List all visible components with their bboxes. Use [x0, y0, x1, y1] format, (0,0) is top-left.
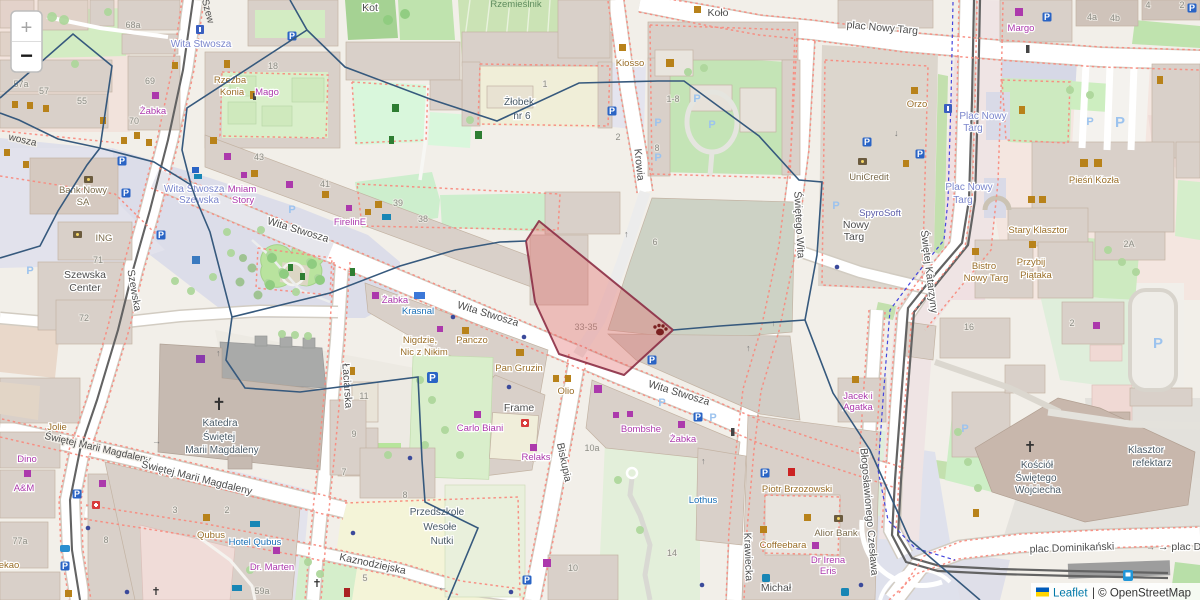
svg-text:71: 71: [93, 255, 103, 265]
svg-text:5: 5: [362, 573, 367, 583]
svg-text:Nowy Targ: Nowy Targ: [964, 273, 1009, 284]
svg-text:→: →: [1146, 542, 1155, 552]
svg-text:Relaks: Relaks: [521, 452, 550, 463]
svg-text:↑: ↑: [216, 348, 221, 358]
svg-text:Panczo: Panczo: [456, 335, 488, 346]
svg-text:16: 16: [964, 322, 974, 332]
svg-text:7: 7: [341, 467, 346, 477]
svg-text:←: ←: [438, 582, 447, 592]
svg-text:↑: ↑: [701, 456, 706, 466]
svg-text:Mago: Mago: [255, 87, 279, 98]
svg-text:Żabka: Żabka: [140, 106, 167, 117]
svg-text:P: P: [917, 149, 923, 159]
svg-text:Wita Stwosza: Wita Stwosza: [171, 39, 232, 50]
svg-text:41: 41: [320, 179, 330, 189]
svg-text:2: 2: [615, 132, 620, 142]
svg-text:Michał: Michał: [761, 582, 792, 594]
svg-text:38: 38: [418, 214, 428, 224]
svg-text:P: P: [695, 412, 701, 422]
svg-text:ekao: ekao: [0, 560, 19, 571]
svg-text:P: P: [1189, 3, 1195, 13]
svg-text:Świętego: Świętego: [1015, 471, 1057, 484]
svg-text:9: 9: [351, 429, 356, 439]
svg-text:SA: SA: [77, 197, 90, 208]
svg-text:Bombshe: Bombshe: [621, 424, 661, 435]
svg-text:A&M: A&M: [14, 483, 35, 494]
svg-text:→: →: [152, 436, 161, 446]
svg-text:8: 8: [402, 490, 407, 500]
svg-text:P: P: [1153, 335, 1163, 352]
svg-text:P: P: [708, 119, 715, 131]
svg-text:1-8: 1-8: [666, 94, 679, 104]
svg-text:8: 8: [103, 535, 108, 545]
svg-text:✝: ✝: [312, 578, 321, 590]
svg-text:1: 1: [542, 79, 547, 89]
svg-text:Żabka: Żabka: [382, 295, 409, 306]
svg-text:Agatka: Agatka: [843, 402, 873, 413]
svg-text:P: P: [524, 575, 530, 585]
svg-text:69: 69: [145, 76, 155, 86]
svg-text:↑: ↑: [746, 343, 751, 353]
svg-text:2: 2: [224, 505, 229, 515]
svg-text:Dr Irena: Dr Irena: [811, 555, 846, 566]
svg-text:2: 2: [1179, 0, 1184, 10]
svg-text:Koło: Koło: [707, 7, 728, 19]
svg-text:✝: ✝: [1024, 439, 1037, 456]
svg-text:Żabka: Żabka: [670, 434, 697, 445]
svg-text:6: 6: [652, 237, 657, 247]
svg-text:P: P: [654, 117, 661, 129]
svg-text:P: P: [26, 265, 33, 277]
svg-text:→: →: [449, 284, 458, 294]
svg-text:Dr. Marten: Dr. Marten: [250, 562, 294, 573]
svg-text:Olio: Olio: [558, 386, 575, 397]
svg-text:Konia: Konia: [220, 87, 245, 98]
svg-text:Targ: Targ: [963, 123, 982, 134]
svg-text:11: 11: [359, 391, 368, 401]
svg-text:Eris: Eris: [820, 566, 837, 577]
svg-text:P: P: [62, 561, 68, 571]
svg-text:→ plac D: → plac D: [1158, 541, 1200, 553]
svg-text:70: 70: [129, 116, 139, 126]
svg-text:Coffeebara: Coffeebara: [760, 540, 808, 551]
svg-text:4: 4: [1145, 0, 1150, 10]
svg-text:Nutki: Nutki: [431, 536, 454, 547]
svg-text:10: 10: [568, 563, 578, 573]
svg-text:SpyroSoft: SpyroSoft: [859, 208, 901, 219]
svg-text:Carlo Biani: Carlo Biani: [457, 423, 503, 434]
svg-text:Pieśń Kozła: Pieśń Kozła: [1069, 175, 1120, 186]
svg-text:2A: 2A: [1123, 239, 1134, 249]
svg-text:P: P: [709, 412, 716, 424]
svg-text:Nowy: Nowy: [843, 219, 870, 231]
svg-text:Bistro: Bistro: [972, 261, 996, 272]
svg-text:P: P: [961, 423, 968, 435]
svg-text:Krawiecka: Krawiecka: [741, 532, 755, 581]
svg-text:Rzemieślnik: Rzemieślnik: [490, 0, 541, 10]
svg-text:10a: 10a: [584, 443, 599, 453]
svg-text:8: 8: [654, 143, 659, 153]
svg-text:14: 14: [667, 548, 677, 558]
svg-text:Qubus: Qubus: [197, 530, 225, 541]
svg-text:Wesołe: Wesołe: [423, 522, 457, 533]
svg-text:↑: ↑: [624, 229, 629, 239]
svg-text:P: P: [649, 355, 655, 365]
svg-text:77a: 77a: [12, 536, 27, 546]
svg-text:Mniam: Mniam: [228, 184, 257, 195]
svg-text:Przybij: Przybij: [1017, 257, 1046, 268]
svg-text:Krasnal: Krasnal: [402, 306, 434, 317]
svg-text:Targ: Targ: [953, 195, 972, 206]
svg-text:3: 3: [172, 505, 177, 515]
svg-text:Orzo: Orzo: [907, 99, 928, 110]
svg-text:59a: 59a: [254, 586, 269, 596]
svg-text:P: P: [123, 188, 129, 198]
svg-text:Kościół: Kościół: [1021, 460, 1054, 471]
svg-text:Szewska: Szewska: [179, 195, 219, 206]
svg-text:P: P: [429, 373, 436, 384]
svg-text:57: 57: [39, 86, 49, 96]
svg-text:P: P: [1115, 114, 1125, 131]
svg-text:Margo: Margo: [1008, 23, 1035, 34]
svg-text:Hotel Qubus: Hotel Qubus: [229, 537, 282, 548]
svg-text:55: 55: [77, 96, 87, 106]
svg-text:4b: 4b: [1110, 13, 1120, 23]
svg-text:P: P: [654, 152, 661, 164]
svg-text:✝: ✝: [151, 586, 160, 598]
svg-text:Nic z Nikim: Nic z Nikim: [400, 347, 448, 358]
svg-text:Marii Magdaleny: Marii Magdaleny: [185, 445, 258, 456]
svg-text:✝: ✝: [212, 395, 226, 414]
svg-text:+: +: [21, 17, 33, 39]
svg-text:ING: ING: [96, 233, 113, 244]
svg-text:68a: 68a: [125, 20, 140, 30]
svg-text:P: P: [1086, 116, 1093, 128]
svg-text:Dino: Dino: [17, 454, 37, 465]
svg-text:Bank Nowy: Bank Nowy: [59, 185, 107, 196]
svg-text:Plac Nowy: Plac Nowy: [959, 111, 1006, 122]
svg-text:Targ: Targ: [844, 231, 865, 243]
svg-text:72: 72: [79, 313, 89, 323]
svg-text:P: P: [74, 489, 80, 499]
svg-text:Świętej: Świętej: [203, 430, 235, 443]
svg-text:P: P: [658, 397, 665, 409]
svg-text:39: 39: [393, 198, 403, 208]
svg-text:2: 2: [1069, 318, 1074, 328]
svg-text:Pan Gruzin: Pan Gruzin: [495, 363, 543, 374]
svg-text:P: P: [762, 468, 768, 478]
svg-text:18: 18: [268, 61, 278, 71]
svg-text:Kiosso: Kiosso: [616, 58, 645, 69]
svg-text:P: P: [158, 230, 164, 240]
svg-text:Nigdzie,: Nigdzie,: [403, 335, 437, 346]
svg-text:Frame: Frame: [504, 402, 534, 414]
svg-text:Jolie: Jolie: [47, 422, 67, 433]
svg-text:−: −: [20, 43, 33, 68]
svg-text:Plac Nowy: Plac Nowy: [945, 182, 992, 193]
svg-text:P: P: [832, 200, 839, 212]
svg-text:Piotr Brzozowski: Piotr Brzozowski: [762, 484, 832, 495]
svg-text:Stary Klasztor: Stary Klasztor: [1008, 225, 1067, 236]
svg-text:P: P: [864, 137, 870, 147]
svg-text:UniCredit: UniCredit: [849, 172, 889, 183]
svg-text:Center: Center: [69, 282, 101, 294]
svg-text:Wojciecha: Wojciecha: [1015, 485, 1061, 496]
svg-text:Kot: Kot: [362, 2, 378, 14]
svg-text:↓: ↓: [894, 128, 899, 138]
svg-text:P: P: [288, 204, 295, 216]
svg-text:FirelinE: FirelinE: [334, 217, 366, 228]
svg-text:Piątaka: Piątaka: [1020, 270, 1052, 281]
svg-text:Leaflet: Leaflet: [1053, 588, 1088, 600]
svg-text:Wita Stwosza /: Wita Stwosza /: [164, 184, 230, 195]
svg-text:Lothus: Lothus: [689, 495, 718, 506]
svg-text:P: P: [693, 93, 700, 105]
svg-text:| © OpenStreetMap: | © OpenStreetMap: [1092, 588, 1191, 600]
svg-text:Jacek i: Jacek i: [843, 391, 873, 402]
svg-text:Katedra: Katedra: [202, 418, 237, 429]
svg-text:43: 43: [254, 152, 264, 162]
svg-text:P: P: [609, 106, 615, 116]
svg-text:P: P: [1044, 12, 1050, 22]
svg-text:4a: 4a: [1087, 12, 1097, 22]
svg-text:Szewska: Szewska: [64, 269, 106, 281]
svg-text:Story: Story: [232, 195, 254, 206]
svg-text:Klasztor: Klasztor: [1128, 445, 1165, 456]
svg-text:P: P: [119, 156, 125, 166]
svg-text:refektarz: refektarz: [1133, 458, 1172, 469]
svg-text:Alior Bank: Alior Bank: [814, 528, 858, 539]
